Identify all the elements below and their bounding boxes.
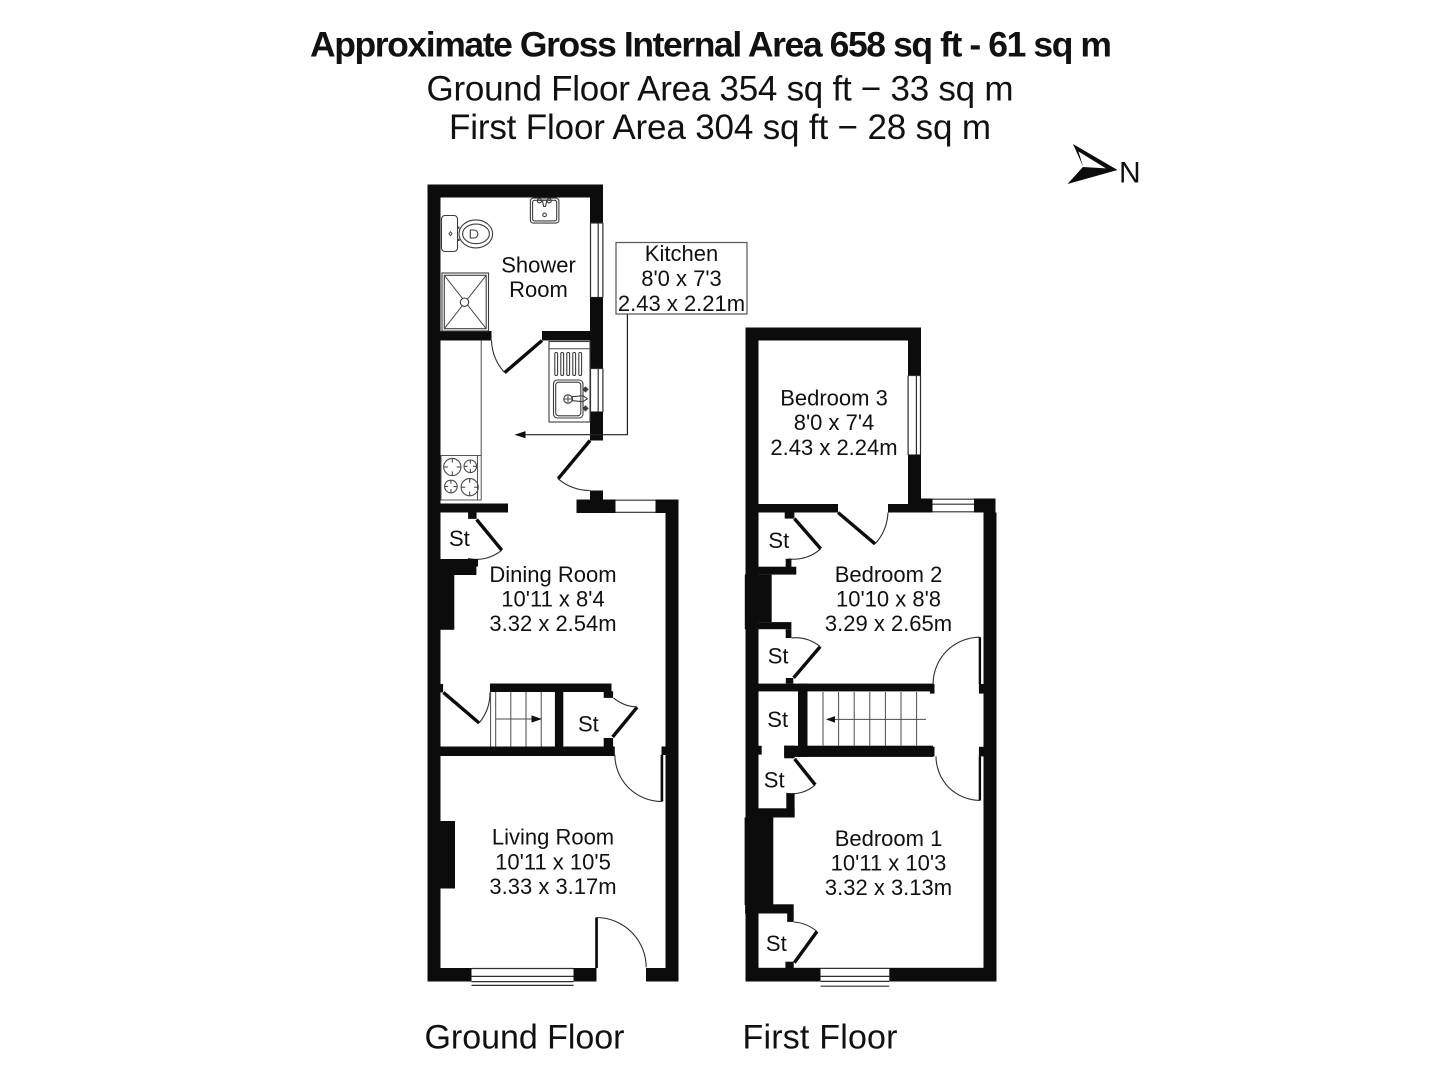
svg-text:3.32 x 3.13m: 3.32 x 3.13m <box>825 875 952 900</box>
svg-text:St: St <box>767 707 788 732</box>
svg-text:Bedroom 1: Bedroom 1 <box>835 826 943 851</box>
svg-text:First Floor: First Floor <box>743 1019 898 1057</box>
svg-text:10'11 x 8'4: 10'11 x 8'4 <box>501 587 604 612</box>
svg-text:N: N <box>1119 157 1141 190</box>
svg-text:2.43 x 2.24m: 2.43 x 2.24m <box>770 435 897 460</box>
svg-text:St: St <box>578 712 599 737</box>
svg-text:2.43 x 2.21m: 2.43 x 2.21m <box>618 291 745 316</box>
svg-text:8'0 x 7'3: 8'0 x 7'3 <box>641 266 722 291</box>
svg-text:3.32 x 2.54m: 3.32 x 2.54m <box>489 611 616 636</box>
svg-text:First Floor Area 304 sq ft − 2: First Floor Area 304 sq ft − 28 sq m <box>449 108 991 147</box>
svg-text:3.29 x 2.65m: 3.29 x 2.65m <box>825 611 952 636</box>
svg-text:Approximate Gross Internal Are: Approximate Gross Internal Area 658 sq f… <box>310 25 1112 65</box>
svg-text:Ground Floor Area 354 sq ft −: Ground Floor Area 354 sq ft − 33 sq m <box>427 70 1014 109</box>
svg-text:Bedroom 3: Bedroom 3 <box>780 386 888 411</box>
svg-text:St: St <box>764 767 785 792</box>
svg-text:St: St <box>766 931 787 956</box>
svg-text:3.33 x 3.17m: 3.33 x 3.17m <box>489 874 616 899</box>
svg-text:Shower: Shower <box>501 253 576 278</box>
svg-text:Dining Room: Dining Room <box>489 562 616 587</box>
svg-text:Ground Floor: Ground Floor <box>425 1019 625 1057</box>
svg-text:10'11 x 10'5: 10'11 x 10'5 <box>495 849 611 874</box>
svg-text:Room: Room <box>509 277 568 302</box>
svg-text:Living Room: Living Room <box>492 825 614 850</box>
svg-text:St: St <box>768 528 789 553</box>
svg-text:8'0 x 7'4: 8'0 x 7'4 <box>794 410 875 435</box>
svg-text:10'10 x 8'8: 10'10 x 8'8 <box>836 587 941 612</box>
svg-text:St: St <box>768 643 789 668</box>
svg-text:Kitchen: Kitchen <box>645 241 718 266</box>
svg-text:St: St <box>449 526 470 551</box>
svg-text:Bedroom 2: Bedroom 2 <box>835 562 943 587</box>
svg-text:10'11 x 10'3: 10'11 x 10'3 <box>831 851 947 876</box>
